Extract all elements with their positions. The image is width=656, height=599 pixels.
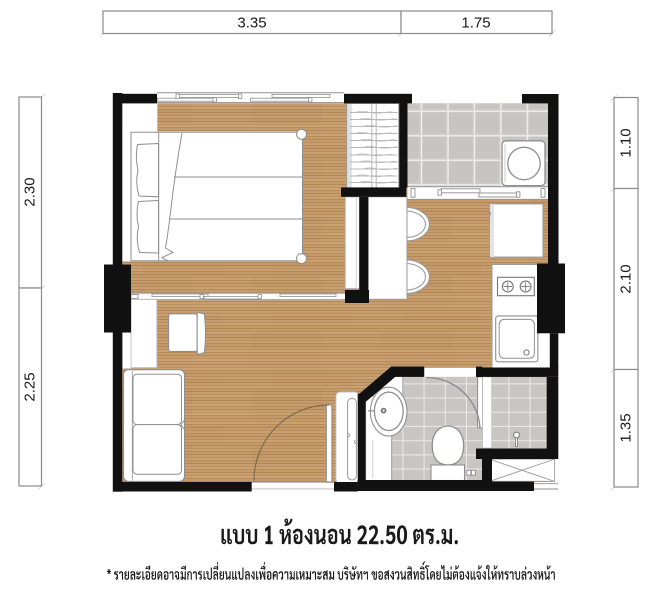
svg-text:2.10: 2.10 xyxy=(618,264,635,293)
svg-text:1.75: 1.75 xyxy=(461,15,490,32)
svg-text:1.35: 1.35 xyxy=(618,413,635,442)
svg-text:2.30: 2.30 xyxy=(22,177,39,206)
svg-text:1.10: 1.10 xyxy=(618,128,635,157)
svg-text:3.35: 3.35 xyxy=(237,15,266,32)
svg-text:2.25: 2.25 xyxy=(22,372,39,401)
